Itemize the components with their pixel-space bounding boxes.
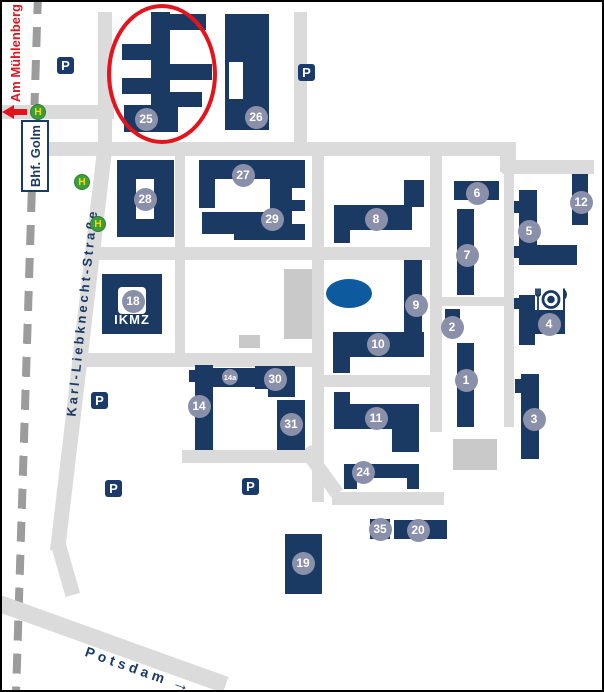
building-courtyard: [229, 62, 243, 99]
building-4: [514, 298, 519, 309]
gray-building: [239, 335, 260, 348]
badge-9: 9: [405, 294, 428, 317]
building-5: [519, 245, 577, 265]
badge-11: 11: [365, 407, 388, 430]
road: [504, 157, 514, 427]
direction-arrow-west-icon: [2, 105, 30, 119]
station-sign-text: Bhf. Golm: [28, 125, 43, 187]
badge-35: 35: [369, 518, 392, 541]
building-5: [514, 246, 519, 258]
road: [435, 297, 510, 306]
building-8: [404, 180, 424, 207]
parking-icon: P: [298, 64, 315, 81]
building-14: [189, 370, 195, 382]
badge-28: 28: [134, 188, 157, 211]
road: [175, 156, 185, 366]
street-label-am-muehlenberg: Am Mühlenberg: [8, 2, 23, 104]
badge-6: 6: [466, 182, 489, 205]
badge-10: 10: [367, 333, 390, 356]
building-10: [333, 332, 350, 373]
badge-30: 30: [264, 368, 287, 391]
building-27-29: [199, 160, 215, 208]
road: [312, 375, 442, 387]
building-11: [334, 392, 350, 404]
badge-31: 31: [280, 413, 303, 436]
road: [51, 543, 80, 597]
badge-5: 5: [518, 220, 541, 243]
road: [0, 594, 229, 692]
badge-2: 2: [441, 316, 464, 339]
badge-27: 27: [232, 164, 255, 187]
badge-14a: 14a: [222, 369, 238, 385]
building-courtyard: [255, 389, 268, 397]
parking-icon: P: [242, 478, 259, 495]
badge-26: 26: [245, 106, 268, 129]
badge-1: 1: [455, 369, 478, 392]
badge-14: 14: [188, 395, 211, 418]
badge-8: 8: [365, 208, 388, 231]
building-11: [392, 429, 405, 452]
badge-25: 25: [135, 108, 158, 131]
street-label-text: Am Mühlenberg: [8, 4, 23, 102]
pond: [326, 279, 372, 308]
parking-icon: P: [91, 392, 108, 409]
road: [430, 156, 442, 432]
bus-stop-icon: H: [30, 104, 46, 120]
badge-19: 19: [292, 552, 315, 575]
road: [182, 450, 312, 463]
road: [332, 492, 444, 505]
building-8: [334, 230, 350, 243]
badge-3: 3: [523, 408, 546, 431]
street-label-karl-liebknecht: Karl-Liebknecht-Straße: [59, 163, 105, 463]
building-27-29: [292, 200, 305, 211]
ikmz-label: IKMZ: [102, 312, 162, 327]
campus-map: Am Mühlenberg Bhf. Golm Karl-Liebknecht-…: [0, 0, 604, 692]
badge-18: 18: [122, 290, 145, 313]
road: [90, 247, 442, 260]
parking-icon: P: [57, 57, 74, 74]
building-11: [405, 404, 419, 452]
building-27-29: [292, 175, 305, 188]
badge-20: 20: [407, 519, 430, 542]
badge-24: 24: [352, 461, 375, 484]
badge-29: 29: [261, 208, 284, 231]
parking-icon: P: [105, 480, 122, 497]
badge-7: 7: [456, 244, 479, 267]
bus-stop-icon: H: [90, 216, 106, 232]
highlight-ellipse: [107, 4, 217, 144]
gray-building: [284, 269, 312, 339]
station-sign: Bhf. Golm: [21, 120, 49, 192]
building-3: [515, 379, 521, 393]
restaurant-icon: [533, 287, 569, 312]
building-5: [514, 201, 519, 213]
road: [294, 12, 307, 152]
building-24: [407, 464, 419, 489]
gray-building: [453, 439, 497, 470]
badge-4: 4: [538, 313, 561, 336]
badge-12: 12: [570, 191, 593, 214]
bus-stop-icon: H: [74, 174, 90, 190]
